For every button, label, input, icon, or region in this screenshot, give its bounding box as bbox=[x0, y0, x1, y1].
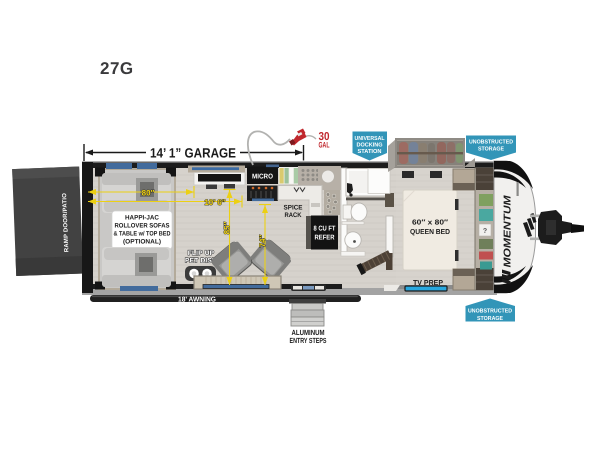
svg-text:STATION: STATION bbox=[358, 148, 382, 155]
svg-text:& TABLE w/ TOP BED: & TABLE w/ TOP BED bbox=[114, 231, 171, 238]
svg-text:74″: 74″ bbox=[258, 234, 267, 247]
svg-text:?: ? bbox=[483, 228, 487, 235]
svg-text:MICRO: MICRO bbox=[252, 174, 273, 181]
svg-text:GAL: GAL bbox=[319, 141, 330, 150]
svg-text:STORAGE: STORAGE bbox=[477, 315, 503, 322]
svg-text:8 CU FT: 8 CU FT bbox=[314, 226, 337, 233]
svg-text:85″: 85″ bbox=[223, 221, 232, 234]
svg-text:14’ 1” GARAGE: 14’ 1” GARAGE bbox=[150, 146, 236, 161]
svg-text:UNOBSTRUCTED: UNOBSTRUCTED bbox=[469, 139, 513, 146]
svg-text:18’ AWNING: 18’ AWNING bbox=[178, 297, 217, 304]
svg-text:QUEEN BED: QUEEN BED bbox=[410, 227, 450, 236]
svg-text:80″: 80″ bbox=[142, 189, 155, 198]
svg-text:FLIP UP: FLIP UP bbox=[188, 250, 215, 257]
svg-text:27G: 27G bbox=[100, 59, 134, 78]
svg-text:UNOBSTRUCTED: UNOBSTRUCTED bbox=[468, 308, 512, 315]
svg-text:RACK: RACK bbox=[285, 212, 302, 219]
svg-text:DOCKING: DOCKING bbox=[357, 141, 383, 148]
svg-text:(OPTIONAL): (OPTIONAL) bbox=[123, 239, 161, 246]
svg-text:UNIVERSAL: UNIVERSAL bbox=[355, 135, 385, 142]
svg-text:MOMENTUM: MOMENTUM bbox=[503, 195, 514, 268]
svg-text:REFER: REFER bbox=[315, 235, 335, 242]
svg-text:60″ x 80″: 60″ x 80″ bbox=[412, 218, 449, 227]
svg-text:SPICE: SPICE bbox=[284, 205, 304, 212]
svg-text:STORAGE: STORAGE bbox=[478, 146, 504, 153]
svg-text:ENTRY STEPS: ENTRY STEPS bbox=[290, 336, 327, 345]
svg-text:10’ 6”: 10’ 6” bbox=[204, 198, 225, 207]
svg-text:ROLLOVER SOFAS: ROLLOVER SOFAS bbox=[115, 223, 171, 230]
svg-text:HAPPI-JAC: HAPPI-JAC bbox=[125, 215, 159, 222]
